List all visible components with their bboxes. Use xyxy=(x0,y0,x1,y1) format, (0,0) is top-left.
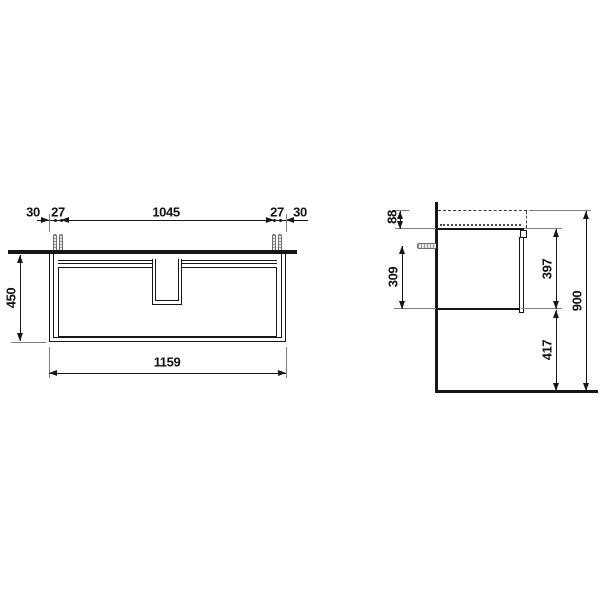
dimension-line-fixing xyxy=(402,246,403,309)
arrowhead-down-icon xyxy=(553,301,559,309)
floor-line xyxy=(435,390,598,393)
drawer-front-panel xyxy=(519,237,524,313)
dim-label-floor-clearance: 417 xyxy=(540,340,555,361)
carcase-top-line xyxy=(438,228,524,230)
carcase-top-dotted-hatch xyxy=(440,224,521,226)
arrowhead-down-icon xyxy=(553,383,559,391)
arrowhead-up-icon xyxy=(583,211,589,219)
arrowhead-up-icon xyxy=(399,246,405,254)
side-view: 88 309 397 417 900 xyxy=(0,0,600,600)
arrowhead-down-icon xyxy=(399,301,405,309)
extension-line-total-top xyxy=(529,210,591,211)
dimension-line-carcase-height xyxy=(556,229,557,309)
dim-label-fixing-height: 309 xyxy=(386,267,401,288)
washbasin-projection-dashed-line xyxy=(526,211,527,228)
carcase-bottom-line xyxy=(438,308,521,310)
dimension-line-total-height xyxy=(586,211,587,391)
wall-anchor-bolt xyxy=(417,243,436,249)
dim-label-total-height: 900 xyxy=(570,291,585,312)
arrowhead-down-icon xyxy=(583,383,589,391)
dimension-line-floor-clearance xyxy=(556,310,557,391)
wall-line xyxy=(435,202,438,393)
dim-label-top-offset: 88 xyxy=(385,210,400,224)
washbasin-projection-dashed-line xyxy=(438,210,527,211)
front-panel-clip xyxy=(520,230,527,238)
arrowhead-up-icon xyxy=(553,229,559,237)
drawing-canvas: 30 27 1045 27 30 450 1159 xyxy=(0,0,600,600)
arrowhead-up-icon xyxy=(553,310,559,318)
dim-label-carcase-height: 397 xyxy=(540,259,555,280)
